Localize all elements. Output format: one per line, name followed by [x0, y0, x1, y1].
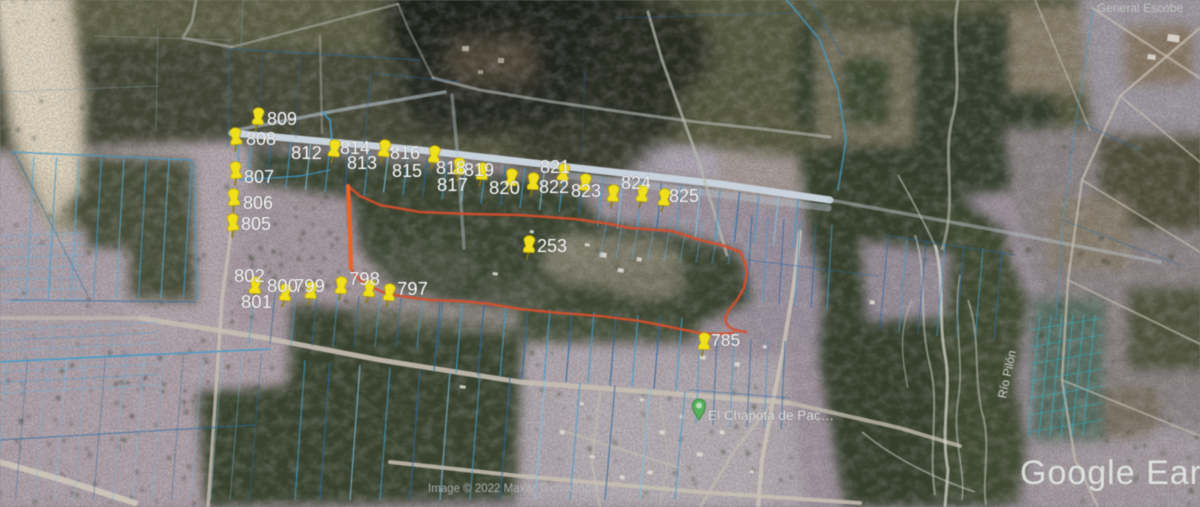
svg-text:808: 808	[246, 129, 276, 149]
svg-text:815: 815	[392, 161, 422, 181]
svg-text:822: 822	[539, 177, 569, 197]
svg-text:825: 825	[669, 186, 699, 206]
svg-text:798: 798	[349, 268, 380, 289]
svg-text:807: 807	[244, 167, 274, 187]
svg-text:El Chapota de Pac…: El Chapota de Pac…	[708, 408, 834, 423]
svg-text:820: 820	[489, 177, 520, 198]
svg-text:806: 806	[243, 193, 273, 213]
svg-text:805: 805	[241, 214, 271, 234]
svg-text:Image © 2022 Maxar Technologie: Image © 2022 Maxar Technologies	[428, 483, 606, 495]
svg-text:824: 824	[621, 173, 651, 193]
svg-text:823: 823	[571, 181, 601, 201]
svg-text:809: 809	[267, 109, 297, 129]
svg-text:813: 813	[347, 153, 377, 173]
svg-text:802: 802	[234, 265, 265, 286]
svg-text:817: 817	[437, 174, 468, 195]
svg-text:785: 785	[711, 330, 740, 350]
svg-text:Google Ear: Google Ear	[1020, 454, 1200, 492]
svg-text:799: 799	[294, 275, 325, 296]
svg-text:821: 821	[540, 157, 570, 177]
svg-text:812: 812	[291, 142, 322, 163]
svg-text:797: 797	[397, 278, 428, 299]
svg-text:General Escobe: General Escobe	[1097, 1, 1183, 15]
svg-text:816: 816	[390, 143, 420, 163]
svg-text:253: 253	[537, 236, 567, 256]
